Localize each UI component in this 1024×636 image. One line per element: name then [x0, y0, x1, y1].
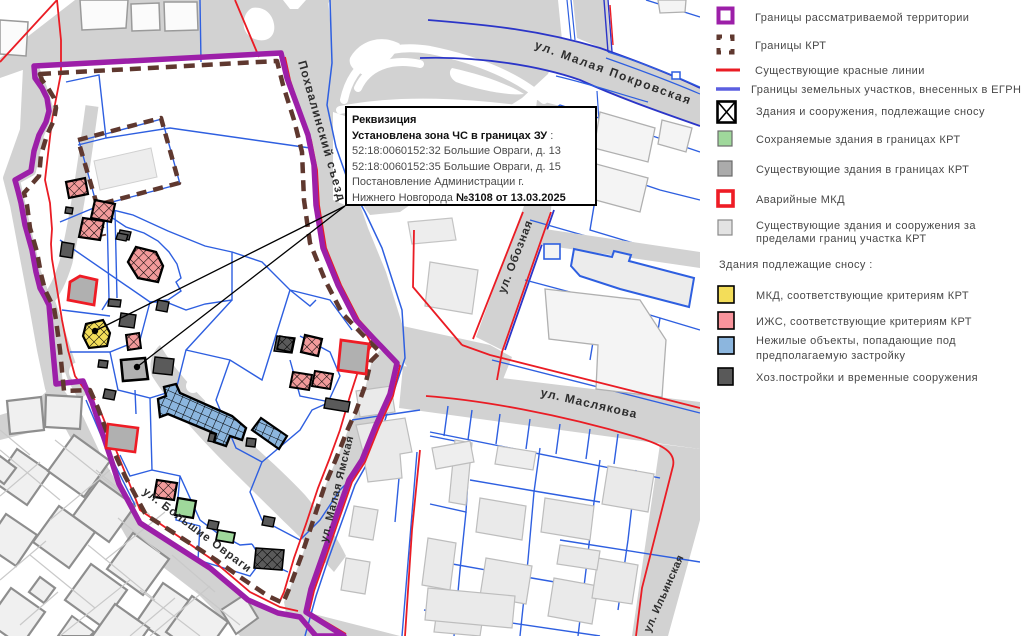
svg-text:предполагаемую застройку: предполагаемую застройку — [756, 350, 905, 362]
svg-text:Существующие здания в границах: Существующие здания в границах КРТ — [756, 164, 969, 176]
svg-text:ИЖС, соответствующие критериям: ИЖС, соответствующие критериям КРТ — [756, 316, 972, 328]
svg-text:Существующие здания и сооружен: Существующие здания и сооружения за — [756, 220, 976, 232]
svg-text:Сохраняемые здания в границах: Сохраняемые здания в границах КРТ — [756, 134, 961, 146]
svg-text:Существующие красные линии: Существующие красные линии — [755, 65, 925, 77]
svg-text:Нежилые объекты, попадающие по: Нежилые объекты, попадающие под — [756, 335, 956, 347]
svg-text:МКД, соответствующие критериям: МКД, соответствующие критериям КРТ — [756, 290, 969, 302]
svg-text:Границы земельных участков, вн: Границы земельных участков, внесенных в … — [751, 84, 1021, 96]
svg-text:Границы рассматриваемой террит: Границы рассматриваемой территории — [755, 12, 969, 24]
svg-text:Здания и сооружения, подлежащи: Здания и сооружения, подлежащие сносу — [756, 106, 985, 118]
svg-text:Границы КРТ: Границы КРТ — [755, 40, 826, 52]
svg-text:Аварийные МКД: Аварийные МКД — [756, 194, 845, 206]
svg-text:Хоз.постройки и временные соор: Хоз.постройки и временные сооружения — [756, 372, 978, 384]
svg-text:Здания подлежащие сносу :: Здания подлежащие сносу : — [719, 259, 873, 271]
svg-text:пределами границ участка КРТ: пределами границ участка КРТ — [756, 233, 927, 245]
